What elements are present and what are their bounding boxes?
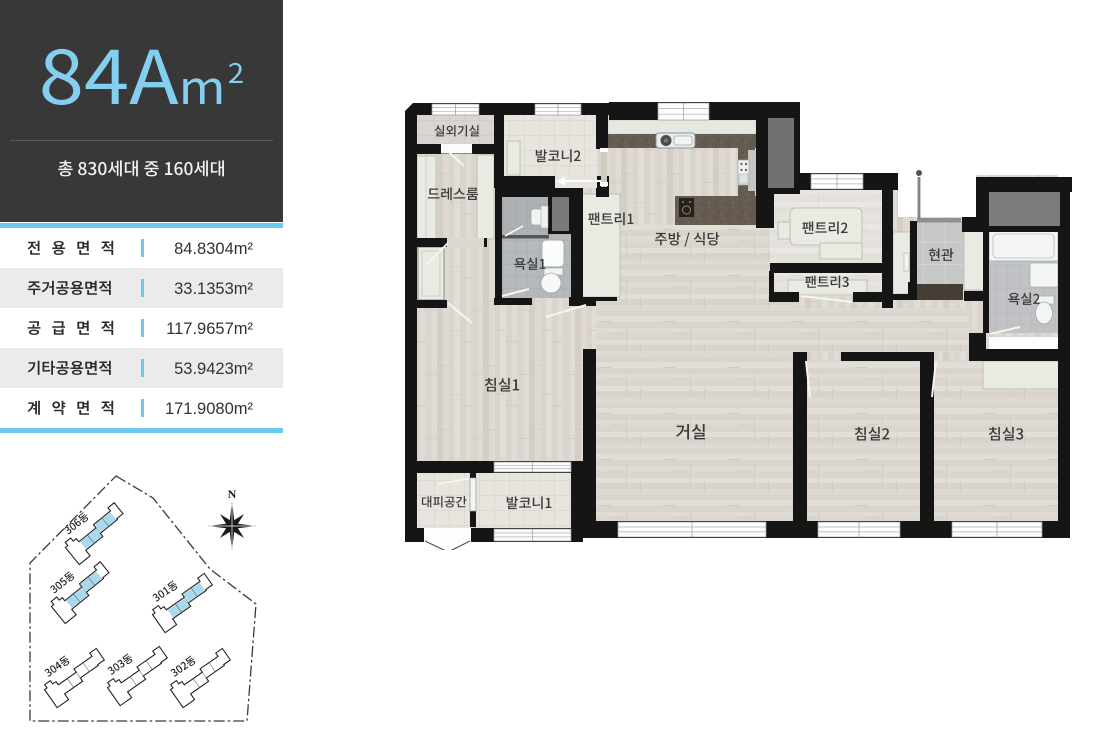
- svg-text:N: N: [228, 487, 237, 501]
- svg-text:171.9080m²: 171.9080m²: [165, 400, 254, 418]
- svg-text:84.8304m²: 84.8304m²: [174, 240, 253, 258]
- svg-text:53.9423m²: 53.9423m²: [174, 360, 253, 378]
- svg-text:33.1353m²: 33.1353m²: [174, 280, 253, 298]
- svg-text:117.9657m²: 117.9657m²: [166, 320, 253, 338]
